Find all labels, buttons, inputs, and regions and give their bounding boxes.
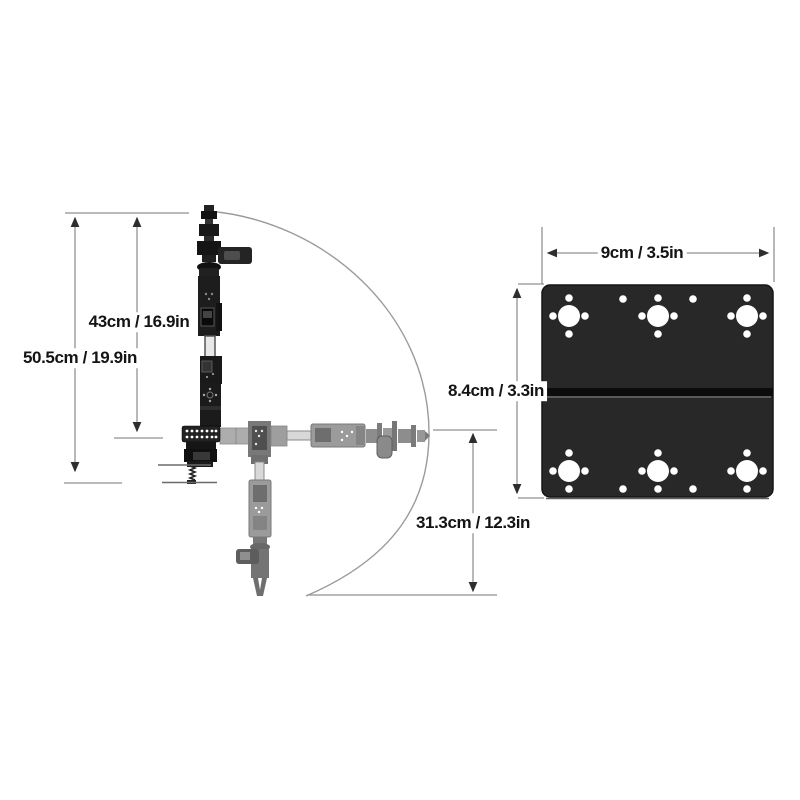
label-plate-height: 8.4cm / 3.3in bbox=[445, 381, 547, 401]
gripper bbox=[197, 205, 221, 262]
label-plate-width: 9cm / 3.5in bbox=[598, 243, 687, 263]
label-upper-height: 43cm / 16.9in bbox=[86, 312, 193, 332]
label-lower-reach: 31.3cm / 12.3in bbox=[413, 513, 533, 533]
ghost-arm-horizontal bbox=[220, 421, 430, 458]
table-clamp bbox=[184, 442, 217, 484]
lower-link bbox=[200, 383, 221, 427]
piston-rod bbox=[205, 336, 215, 357]
ghost-arm-down bbox=[236, 455, 271, 596]
table-edge-lines bbox=[158, 465, 217, 483]
mounting-plate bbox=[542, 285, 773, 499]
middle-joint bbox=[200, 356, 222, 384]
product-dimension-diagram: 50.5cm / 19.9in 43cm / 16.9in 31.3cm / 1… bbox=[0, 0, 800, 800]
plate-groove bbox=[542, 388, 773, 396]
wrist-pendant bbox=[377, 436, 392, 458]
rotation-range-arc bbox=[207, 211, 429, 596]
arm-base-plate bbox=[182, 426, 220, 442]
camera-attachment bbox=[218, 247, 252, 264]
label-overall-height: 50.5cm / 19.9in bbox=[20, 348, 140, 368]
upper-link bbox=[198, 276, 222, 336]
diagram-canvas bbox=[0, 0, 800, 800]
